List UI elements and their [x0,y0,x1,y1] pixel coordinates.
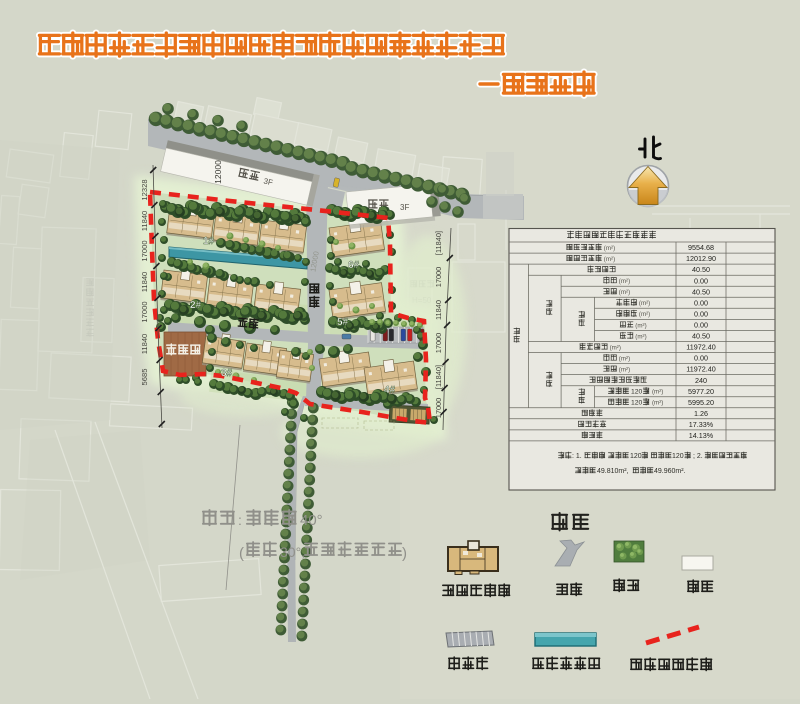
svg-text:120: 120 [630,453,642,460]
svg-text:17000: 17000 [140,240,149,261]
svg-text:17000: 17000 [434,398,443,419]
svg-text:120: 120 [631,389,643,396]
svg-text:3#: 3# [221,368,233,379]
svg-text:12328: 12328 [140,179,149,200]
svg-text:1#: 1# [203,236,215,247]
svg-text:17000: 17000 [140,301,149,322]
svg-text:11840: 11840 [140,211,149,232]
svg-text:11972.40: 11972.40 [686,343,715,352]
svg-text:14.13%: 14.13% [689,431,714,440]
svg-text:(: ( [239,545,244,562]
svg-text:240: 240 [695,376,707,385]
svg-text:49.810m²,: 49.810m², [597,468,629,475]
svg-text:(m²): (m²) [604,256,615,263]
svg-text:5977.20: 5977.20 [688,387,714,396]
svg-text:120: 120 [672,453,684,460]
svg-text:(m²): (m²) [610,344,621,351]
svg-text:0.00: 0.00 [694,298,708,307]
svg-text:): ) [402,545,407,562]
svg-text:5#: 5# [337,317,349,328]
svg-text:40.50: 40.50 [692,265,710,274]
svg-text:; 2.: ; 2. [693,453,703,460]
svg-text:1.26: 1.26 [694,409,708,418]
svg-text:(m²): (m²) [635,333,646,340]
svg-text:11840: 11840 [140,334,149,355]
svg-text:0.00: 0.00 [694,276,708,285]
svg-text:3F: 3F [263,177,274,188]
svg-text:(m²): (m²) [652,389,663,396]
svg-text:(m²): (m²) [619,278,630,285]
svg-text:[11840]: [11840] [434,231,443,255]
svg-text:4#: 4# [384,385,396,396]
svg-text:5685: 5685 [140,369,149,386]
svg-text:120: 120 [631,400,643,407]
svg-text:(m²): (m²) [619,355,630,362]
svg-text:9554.68: 9554.68 [688,243,714,252]
svg-text:(m²): (m²) [619,367,630,374]
svg-text:11972.40: 11972.40 [686,365,715,374]
svg-text:3F: 3F [400,203,409,212]
svg-text:(m²): (m²) [639,311,650,318]
svg-text:40°: 40° [300,512,323,529]
svg-text:11840: 11840 [434,300,443,320]
svg-text:(m²): (m²) [639,300,650,307]
svg-text:11840: 11840 [140,272,149,293]
svg-text:0.00: 0.00 [694,310,708,319]
svg-text:49.960m².: 49.960m². [654,468,686,475]
svg-text:40.50: 40.50 [692,287,710,296]
svg-text:17000: 17000 [434,333,443,354]
svg-text:40.50: 40.50 [692,332,710,341]
svg-text:(m²): (m²) [652,400,663,407]
svg-text:: 1.: : 1. [572,453,582,460]
svg-text:0.00: 0.00 [694,321,708,330]
svg-text:(m²): (m²) [635,322,646,329]
svg-text:17.33%: 17.33% [689,420,714,429]
svg-text:(m²): (m²) [604,245,615,252]
svg-text:17000: 17000 [434,267,443,288]
svg-text:0.00: 0.00 [694,354,708,363]
svg-text:12012.90: 12012.90 [686,254,716,263]
svg-text:5995.20: 5995.20 [688,398,714,407]
svg-text:2#: 2# [190,300,202,311]
svg-text:[11840]: [11840] [434,365,443,389]
svg-text:12000: 12000 [213,160,223,184]
svg-text:30°,: 30°, [280,544,305,560]
svg-text:(m²): (m²) [619,289,630,296]
svg-text:6#: 6# [348,260,360,271]
svg-text::: : [238,512,242,528]
